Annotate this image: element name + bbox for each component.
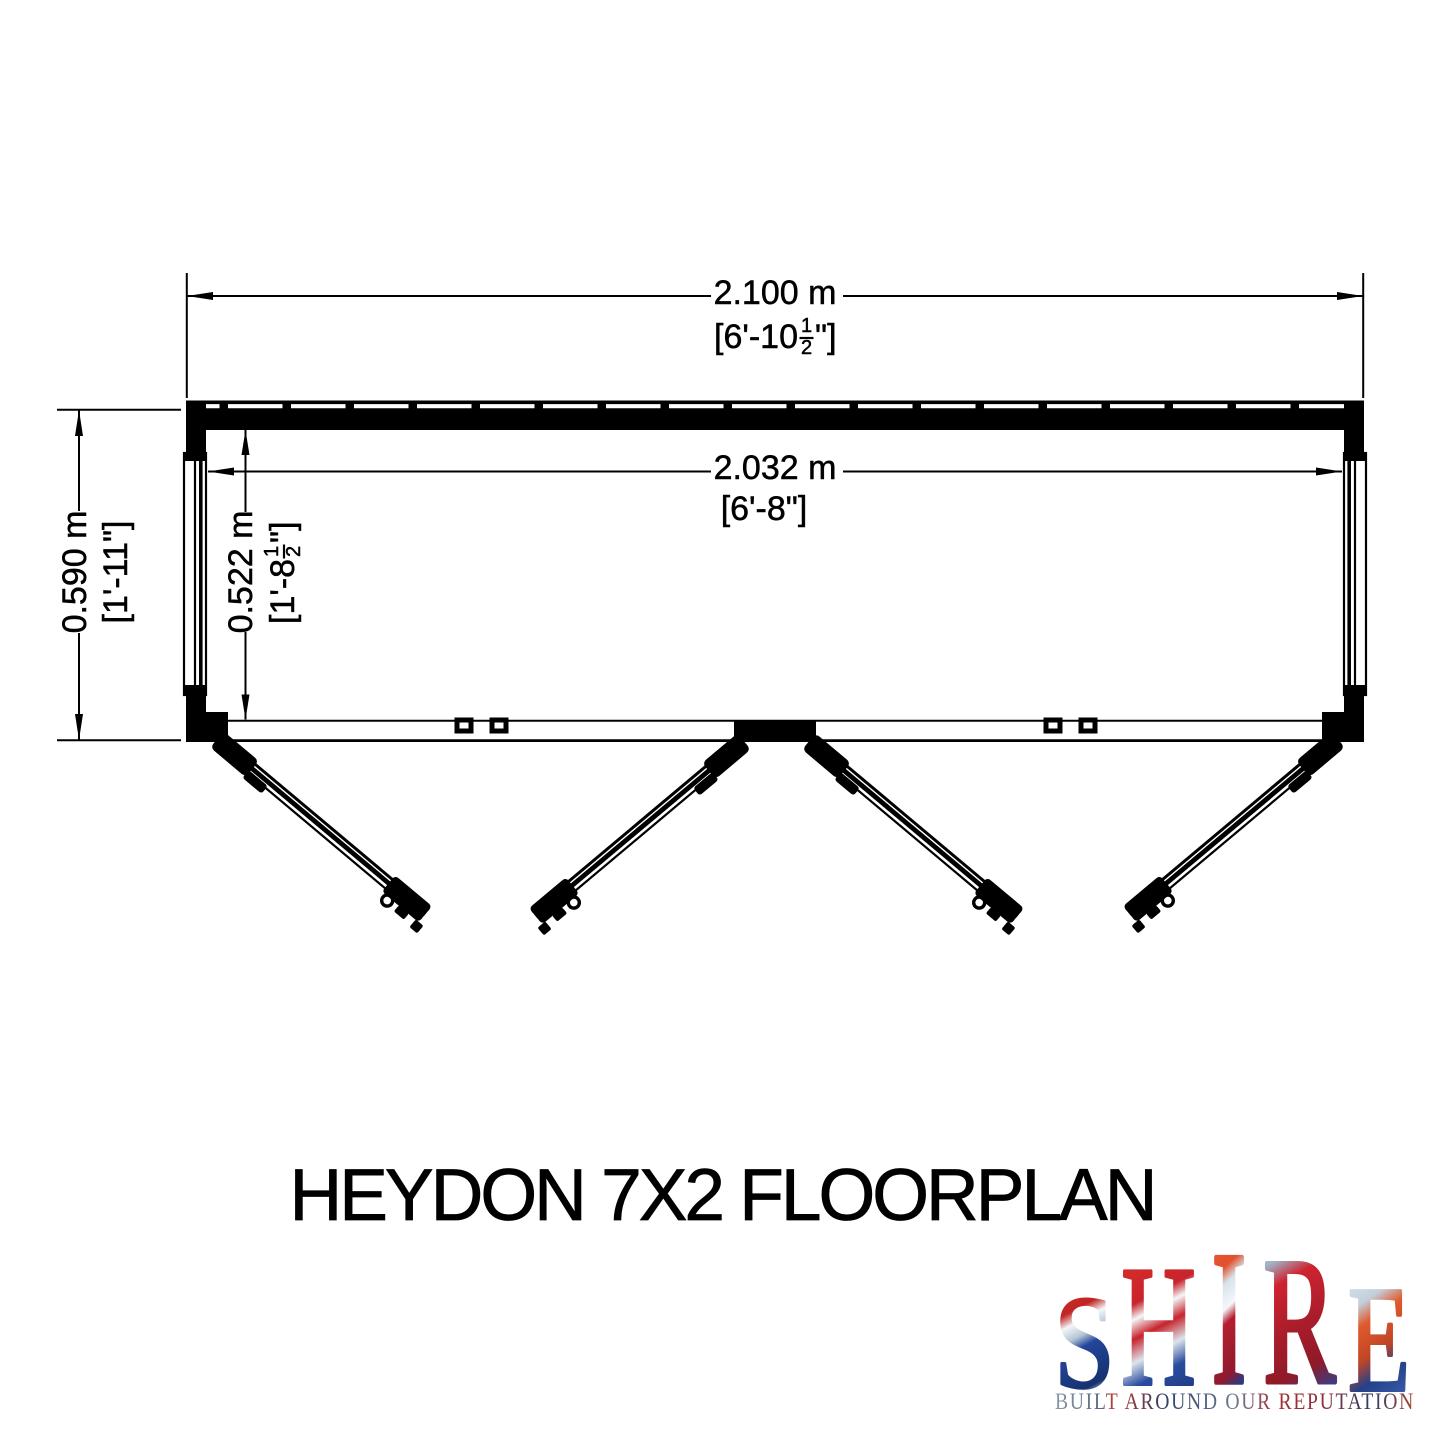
svg-text:"]: "]: [815, 318, 837, 356]
svg-text:0.590 m: 0.590 m: [56, 511, 94, 634]
svg-text:[1'-8: [1'-8: [264, 559, 302, 624]
svg-text:2.100 m: 2.100 m: [714, 274, 837, 312]
svg-text:1: 1: [801, 315, 812, 337]
svg-text:2: 2: [283, 546, 305, 557]
svg-text:0.522 m: 0.522 m: [222, 511, 260, 634]
svg-text:1: 1: [261, 546, 283, 557]
svg-text:2.032 m: 2.032 m: [714, 449, 837, 487]
svg-text:"]: "]: [264, 521, 302, 543]
svg-text:2: 2: [801, 337, 812, 359]
svg-text:[6'-10: [6'-10: [714, 318, 798, 356]
svg-text:[1'-11"]: [1'-11"]: [97, 521, 135, 624]
svg-text:BUILT AROUND OUR REPUTATION: BUILT AROUND OUR REPUTATION: [1055, 1389, 1415, 1414]
svg-text:[6'-8"]: [6'-8"]: [721, 490, 808, 528]
svg-text:HEYDON 7X2 FLOORPLAN: HEYDON 7X2 FLOORPLAN: [290, 1155, 1155, 1236]
